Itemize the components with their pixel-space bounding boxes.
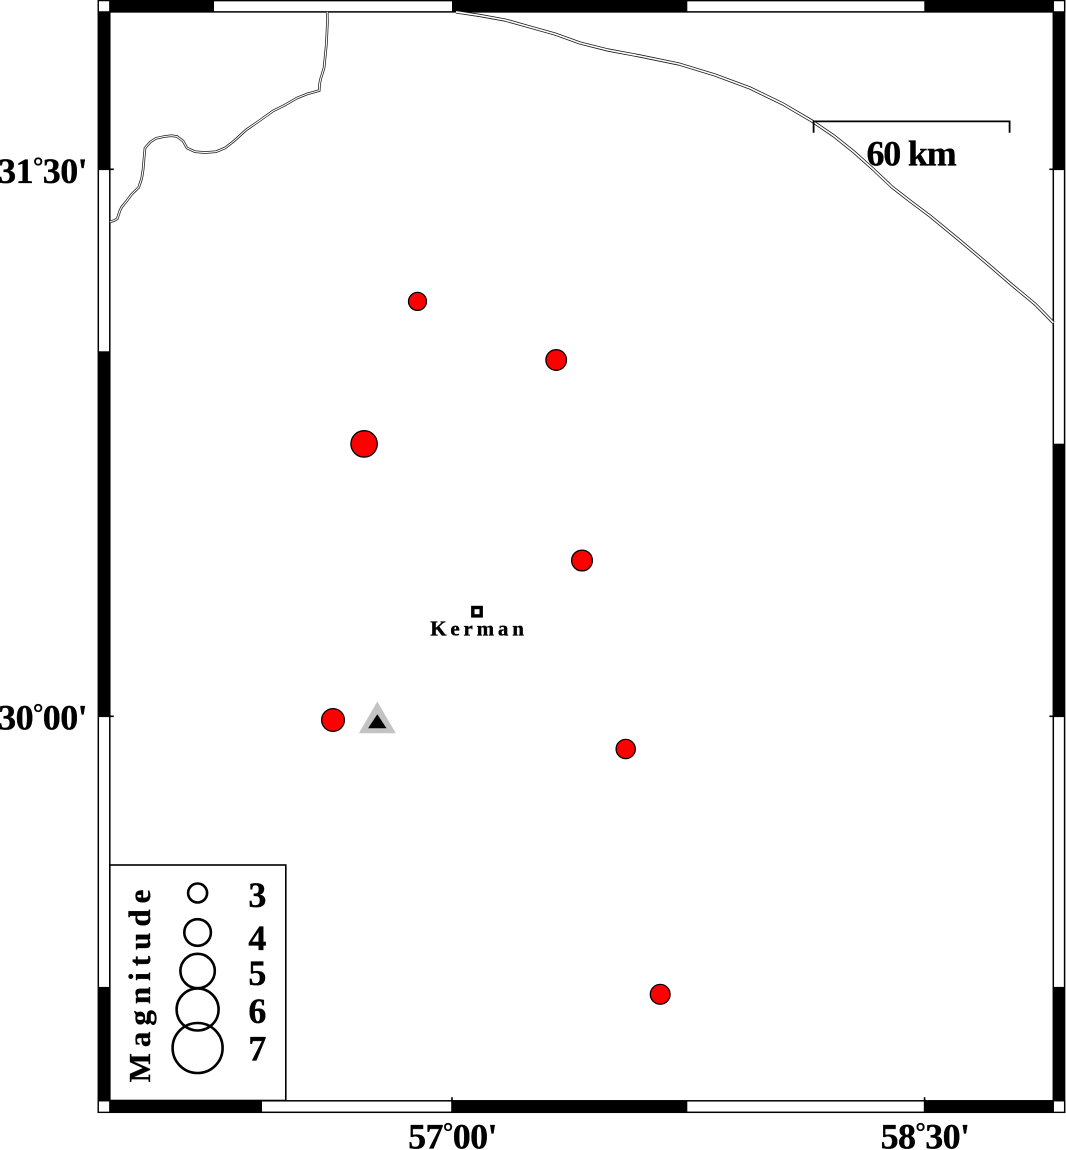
svg-text:6: 6 (248, 991, 266, 1031)
svg-text:5: 5 (248, 953, 266, 993)
svg-text:30°00': 30°00' (0, 698, 87, 738)
svg-text:7: 7 (248, 1029, 266, 1069)
svg-text:3: 3 (248, 875, 266, 915)
svg-text:57°00': 57°00' (408, 1117, 497, 1150)
svg-text:31°30': 31°30' (0, 151, 87, 191)
svg-text:58°30': 58°30' (881, 1117, 970, 1150)
svg-text:Kerman: Kerman (430, 616, 527, 640)
svg-text:60 km: 60 km (866, 133, 956, 173)
svg-text:Magnitude: Magnitude (122, 884, 157, 1083)
